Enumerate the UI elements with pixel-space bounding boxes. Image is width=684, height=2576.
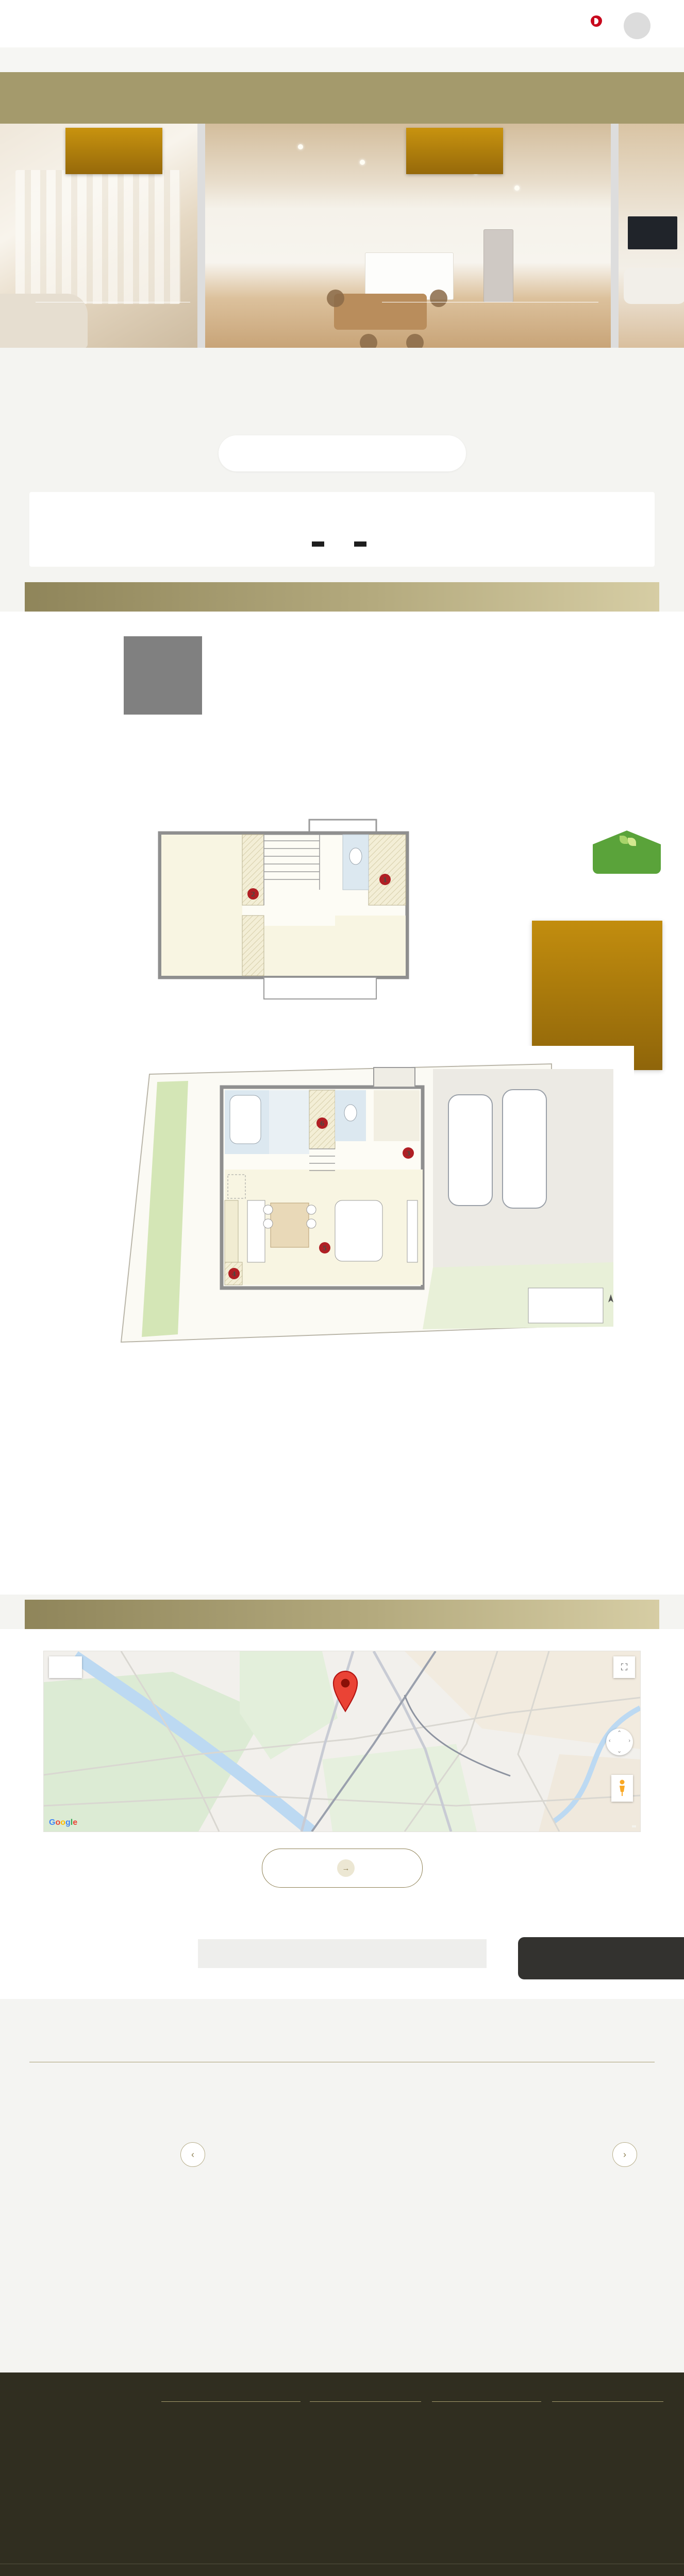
carousel-prev-icon[interactable]: ‹ [180, 2142, 205, 2167]
footer: → → [0, 2372, 684, 2576]
plan-section-title [25, 582, 659, 612]
page: 1 2 [0, 0, 684, 2576]
floating-action-bar [518, 1937, 684, 1979]
building-area-badge [354, 541, 366, 547]
header [0, 0, 684, 47]
pan-control[interactable]: ⌃⌄ ‹› [606, 1728, 633, 1755]
map-type-control[interactable] [49, 1656, 82, 1678]
footer-col-special [432, 2394, 541, 2414]
price-card [29, 492, 655, 567]
svg-text:1: 1 [383, 876, 387, 884]
page-title-banner [0, 72, 684, 124]
fullscreen-icon[interactable]: ⛶ [613, 1656, 635, 1678]
carousel-next-icon[interactable]: › [612, 2142, 637, 2167]
help-bubble[interactable] [624, 12, 650, 39]
map-section-title [25, 1600, 659, 1629]
footer-col-point [552, 2394, 663, 2414]
photo-watermark [382, 299, 598, 307]
google-map[interactable]: ⛶ ⌃⌄ ‹› Google [44, 1651, 640, 1832]
photo-watermark [36, 299, 190, 307]
svg-text:2: 2 [251, 891, 255, 898]
svg-text:4: 4 [232, 1270, 236, 1278]
arrow-right-icon: → [337, 1859, 355, 1877]
pegman-icon[interactable] [611, 1775, 633, 1802]
svg-text:6: 6 [320, 1120, 324, 1127]
nearby-section: ‹ › [0, 1999, 684, 2349]
nearby-divider [29, 2062, 655, 2062]
land-area-badge [312, 541, 324, 547]
daiwa-house-logo[interactable] [591, 15, 605, 27]
gallery-photo-left[interactable] [0, 124, 197, 348]
daiwa-mark-icon [591, 15, 602, 27]
fridge-decor [483, 229, 513, 302]
furniture-badge [406, 128, 503, 174]
svg-text:3: 3 [406, 1150, 410, 1157]
map-attribution[interactable] [632, 1825, 636, 1827]
map-canvas [44, 1651, 640, 1832]
gallery-photo-right[interactable] [619, 124, 684, 348]
breadcrumb [0, 47, 684, 72]
lot-number-box [124, 636, 202, 715]
floorplan-2f: 1 2 [129, 818, 490, 1020]
footer-col-search [161, 2394, 301, 2414]
nearly-zeh-badge [593, 831, 661, 874]
gallery-photo-main[interactable] [205, 124, 611, 348]
floorplan-1f: 3 4 5 6 [93, 1046, 634, 1360]
photo-gallery [0, 124, 684, 348]
curtain-decor [15, 170, 180, 304]
furniture-badge [65, 128, 162, 174]
open-google-map-button[interactable]: → [262, 1849, 423, 1888]
carnavi-address [198, 1939, 487, 1968]
svg-text:5: 5 [323, 1245, 327, 1252]
plan-section: 1 2 [0, 612, 684, 1595]
lot-tabs [219, 435, 466, 471]
footer-col-securea [310, 2394, 421, 2414]
tv-decor [628, 216, 677, 249]
cta-divider [0, 2564, 684, 2564]
sofa-decor [624, 268, 684, 304]
google-logo: Google [49, 1818, 77, 1827]
